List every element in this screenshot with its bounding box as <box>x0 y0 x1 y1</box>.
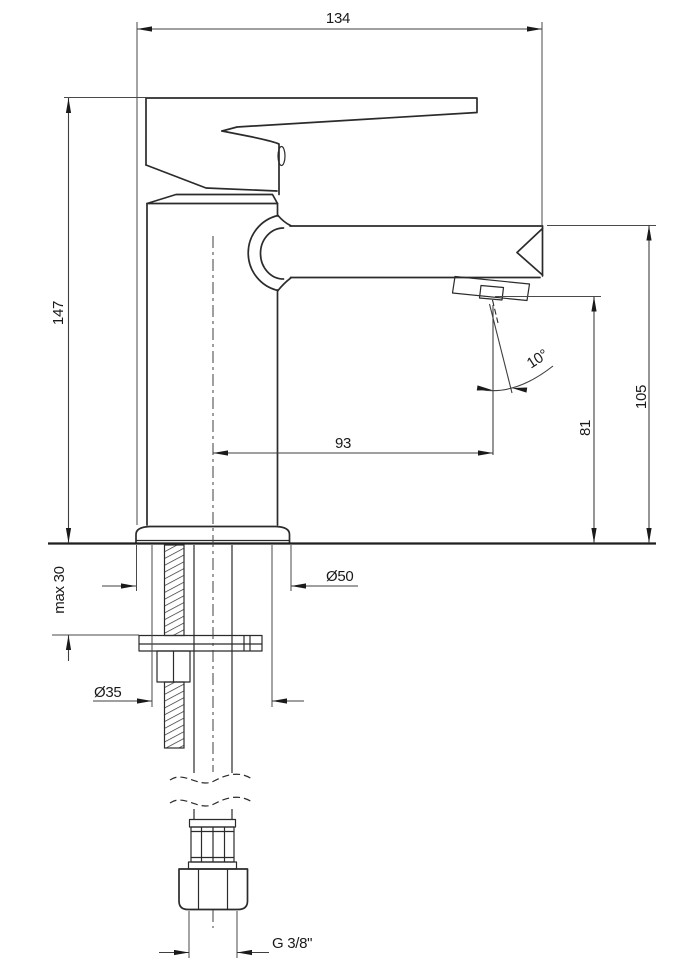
dim-overall-width-label: 134 <box>326 10 350 27</box>
dim-overall-height-label: 147 <box>50 301 67 325</box>
hex-nut <box>179 869 248 910</box>
spout-joint <box>248 216 291 291</box>
break-line-upper <box>170 774 252 783</box>
dim-deck-thickness-label: max 30 <box>51 566 68 613</box>
technical-drawing-page: 134 147 max 30 Ø50 Ø35 93 81 105 10° G 3… <box>0 0 690 976</box>
hose-connector <box>179 820 248 910</box>
angle-arc <box>478 366 553 391</box>
mounting-hardware <box>139 545 262 748</box>
aerator <box>453 277 530 324</box>
threaded-stud-lower <box>165 682 185 748</box>
handle-lever <box>146 98 477 195</box>
dimension-arrows <box>66 26 652 955</box>
dim-base-diameter-label: Ø50 <box>326 568 353 585</box>
cartridge-cone <box>147 195 278 204</box>
faucet-outline <box>48 98 656 928</box>
dimension-graphics: 134 147 max 30 Ø50 Ø35 93 81 105 10° G 3… <box>50 10 656 958</box>
faucet-technical-drawing: 134 147 max 30 Ø50 Ø35 93 81 105 10° G 3… <box>0 0 690 976</box>
dim-spout-height-label: 105 <box>633 385 650 409</box>
dim-aerator-height-label: 81 <box>577 420 594 436</box>
dim-hole-diameter-label: Ø35 <box>94 684 121 701</box>
body-column <box>147 204 278 526</box>
dim-stream-angle-label: 10° <box>524 346 552 372</box>
break-line-lower <box>170 797 252 806</box>
spout <box>290 226 543 278</box>
threaded-stud-upper <box>165 545 185 636</box>
dim-thread-label: G 3/8" <box>272 935 312 952</box>
dim-spout-reach-label: 93 <box>335 435 351 452</box>
